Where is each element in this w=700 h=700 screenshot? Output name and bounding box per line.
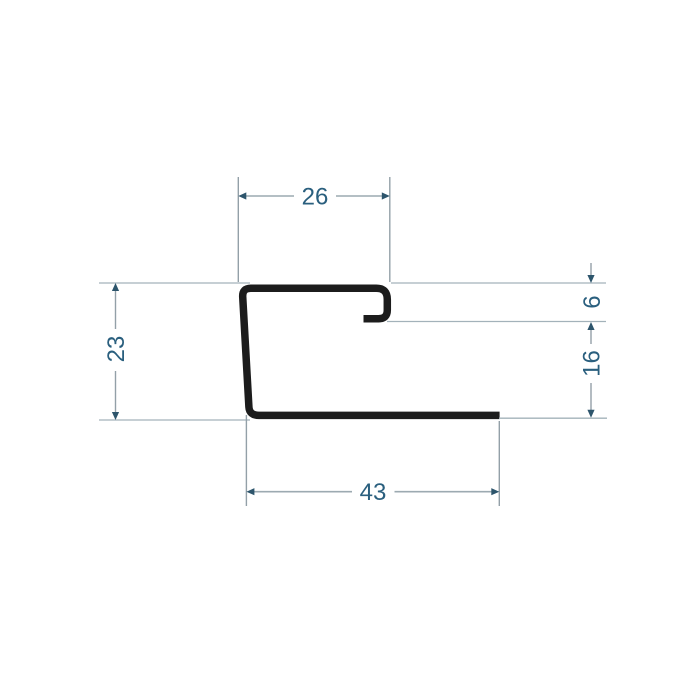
- svg-text:43: 43: [360, 479, 387, 506]
- svg-text:23: 23: [103, 336, 130, 363]
- svg-text:6: 6: [579, 295, 606, 308]
- svg-text:26: 26: [302, 184, 329, 211]
- svg-text:16: 16: [579, 350, 606, 377]
